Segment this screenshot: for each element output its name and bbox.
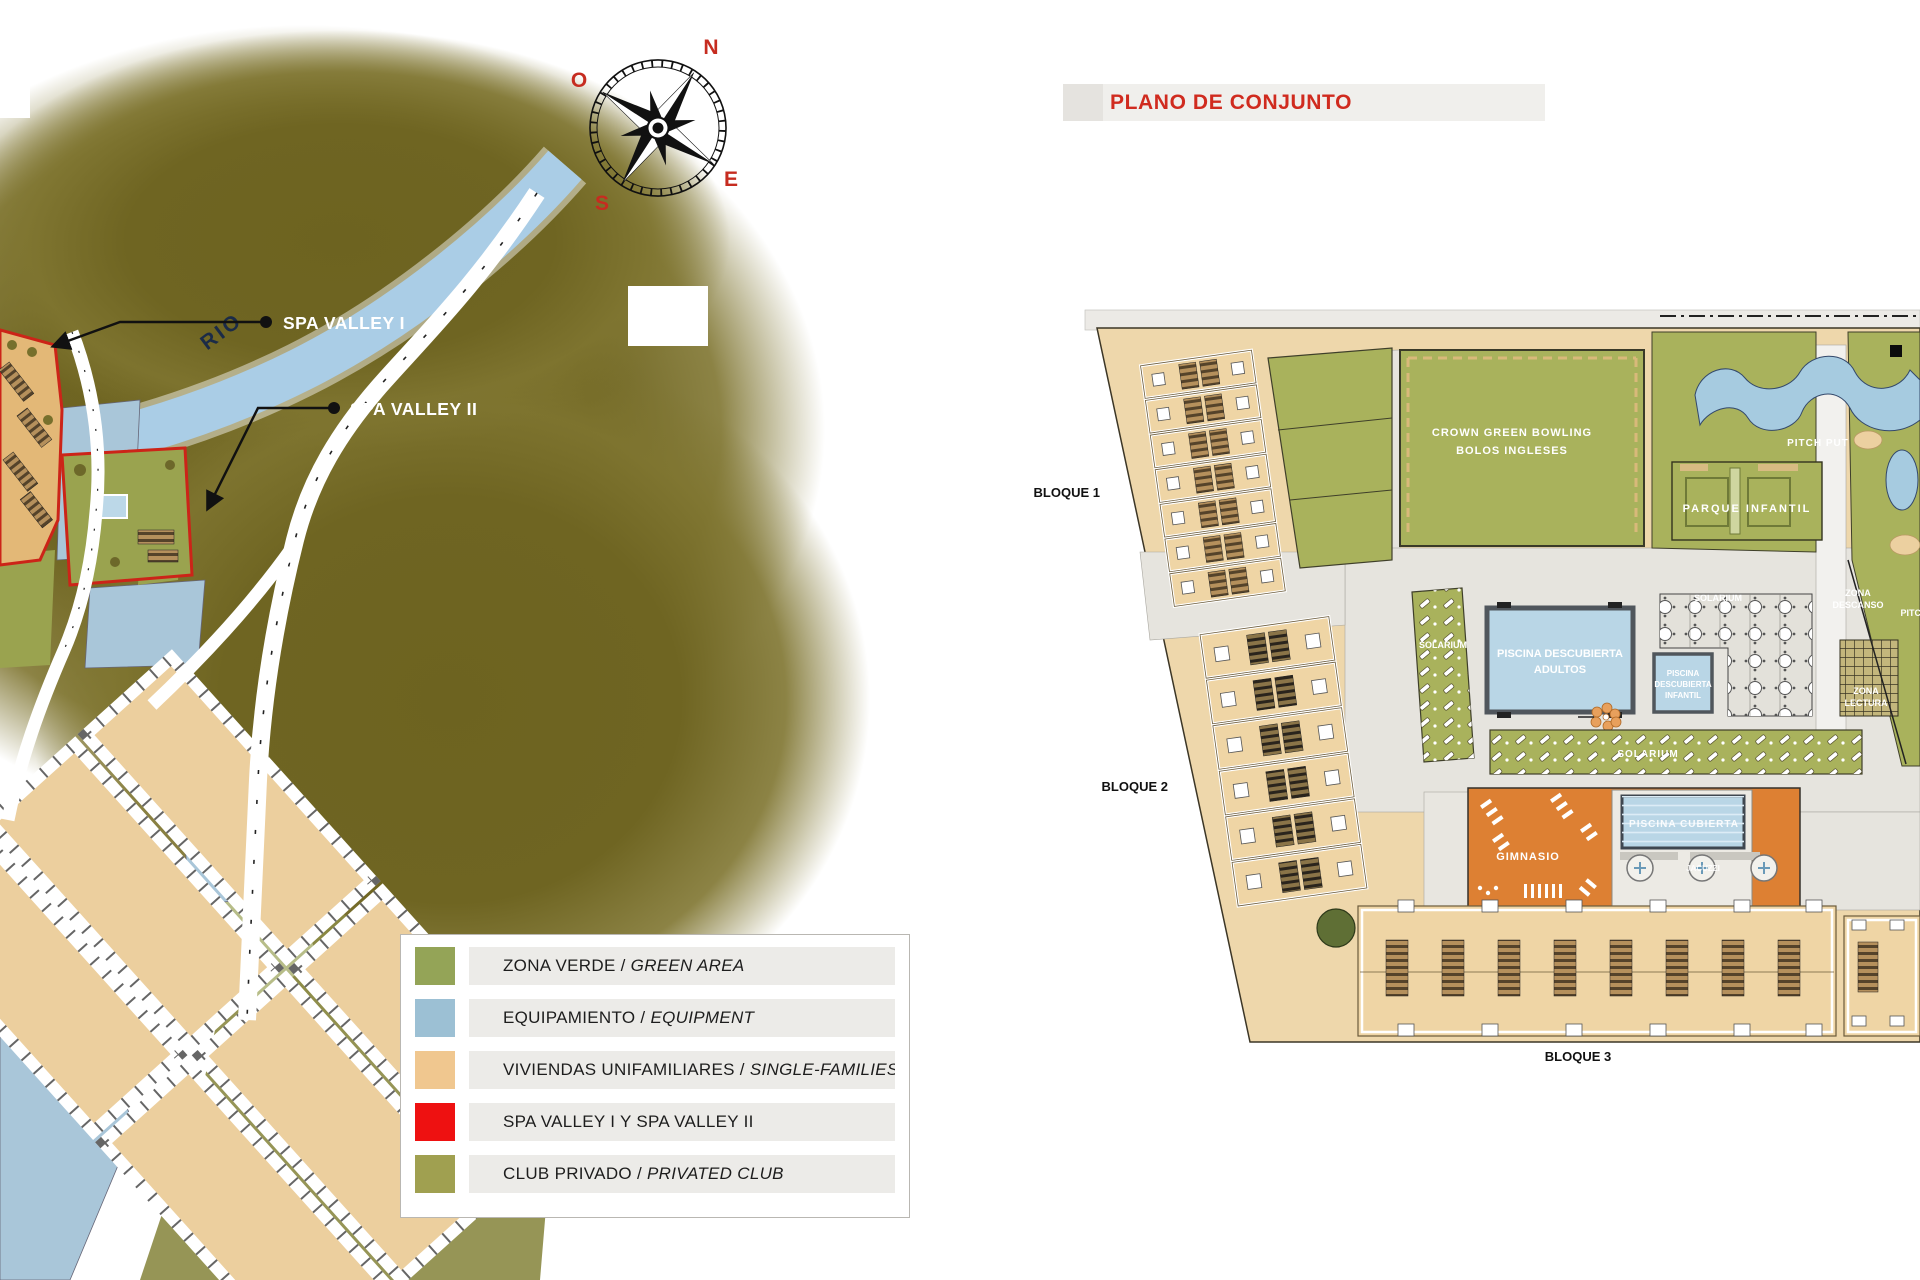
plan-title-bar: PLANO DE CONJUNTO — [1063, 84, 1545, 121]
kids-pool-label-1: PISCINA — [1667, 669, 1700, 678]
bowling-green: CROWN GREEN BOWLING BOLOS INGLESES — [1400, 350, 1644, 546]
bloque-2-label: BLOQUE 2 — [1102, 779, 1168, 794]
legend-swatch-blue — [415, 999, 455, 1037]
bloque-1-label: BLOQUE 1 — [1034, 485, 1100, 500]
spa-valley-2-label: SPA VALLEY II — [350, 399, 477, 419]
brochure-page: RIO — [0, 0, 1920, 1280]
bowling-label-1: CROWN GREEN BOWLING — [1432, 427, 1592, 439]
legend-item-houses: VIVIENDAS UNIFAMILIARES / SINGLE-FAMILIE… — [415, 1051, 895, 1089]
legend-item-private-club: CLUB PRIVADO / PRIVATED CLUB — [415, 1155, 895, 1193]
pond — [1886, 450, 1918, 510]
site-plan-artwork: RIO — [0, 0, 1920, 1280]
zona-descanso-1: ZONA — [1845, 588, 1871, 598]
legend-swatch-tan — [415, 1051, 455, 1089]
legend-item-equipment: EQUIPAMIENTO / EQUIPMENT — [415, 999, 895, 1037]
kids-pool-label-3: INFANTIL — [1665, 691, 1701, 700]
spa-valley-2-parcel — [62, 448, 192, 585]
bloque-3-label: BLOQUE 3 — [1545, 1049, 1611, 1064]
legend-swatch-red — [415, 1103, 455, 1141]
gym-label: GIMNASIO — [1496, 851, 1560, 863]
spa-valley-1-parcel — [0, 330, 62, 565]
tree-bush — [1317, 909, 1355, 947]
bunker — [1854, 431, 1882, 449]
legend-label-private-club: CLUB PRIVADO / PRIVATED CLUB — [469, 1155, 895, 1193]
spa-valley-1-label: SPA VALLEY I — [283, 313, 405, 333]
adult-pool: PISCINA DESCUBIERTA ADULTOS — [1487, 602, 1633, 718]
bowling-label-2: BOLOS INGLESES — [1456, 445, 1568, 457]
legend-label-spa-valley: SPA VALLEY I Y SPA VALLEY II — [469, 1103, 895, 1141]
solarium-label-band: SOLARIUM — [1617, 749, 1678, 760]
zona-lectura-1: ZONA — [1853, 686, 1879, 696]
pitch-partial-label: PITCH — [1901, 608, 1920, 618]
legend-swatch-olive — [415, 1155, 455, 1193]
adult-pool-label-2: ADULTOS — [1534, 664, 1586, 676]
compass-e: E — [724, 168, 738, 191]
compass-s: S — [595, 192, 609, 215]
callout-dot — [328, 402, 340, 414]
adult-pool-label-1: PISCINA DESCUBIERTA — [1497, 648, 1623, 660]
title-bar-tab — [1063, 84, 1103, 121]
legend-label-houses: VIVIENDAS UNIFAMILIARES / SINGLE-FAMILIE… — [469, 1051, 895, 1089]
right-site-plan: CROWN GREEN BOWLING BOLOS INGLESES PITCH… — [1034, 310, 1920, 1064]
legend-item-spa-valley: SPA VALLEY I Y SPA VALLEY II — [415, 1103, 895, 1141]
legend-item-green-area: ZONA VERDE / GREEN AREA — [415, 947, 895, 985]
blank-box-artifact — [628, 286, 708, 346]
indoor-pool-label: PISCINA CUBIERTA — [1629, 819, 1739, 830]
pitch-put-label: PITCH PUT — [1787, 438, 1849, 449]
legend-label-green: ZONA VERDE / GREEN AREA — [469, 947, 895, 985]
callout-dot — [260, 316, 272, 328]
zona-lectura-2: LECTURA — [1845, 698, 1888, 708]
blank-label-artifact — [0, 72, 30, 118]
solarium-label-top: SOLARIUM — [1694, 593, 1742, 603]
page-title: PLANO DE CONJUNTO — [1110, 84, 1352, 121]
kids-pool-label-2: DESCUBIERTA — [1654, 680, 1711, 689]
green-parcel — [0, 550, 55, 668]
compass-n: N — [703, 36, 718, 59]
flag-marker — [1890, 345, 1902, 357]
kids-pool: PISCINA DESCUBIERTA INFANTIL — [1654, 654, 1712, 712]
compass-o: O — [571, 69, 587, 92]
equipment-parcel — [85, 580, 205, 668]
solarium-band: SOLARIUM — [1490, 730, 1862, 774]
bunker — [1890, 535, 1920, 555]
playground-label: PARQUE INFANTIL — [1683, 503, 1812, 515]
bloque-3-buildings — [1358, 900, 1920, 1036]
sports-building: GIMNASIO PISCINA CUBIERTA JACUZZI — [1468, 788, 1800, 908]
playground: PARQUE INFANTIL — [1672, 462, 1822, 540]
solarium-label-left: SOLARIUM — [1419, 640, 1467, 650]
zona-descanso-2: DESCANSO — [1832, 600, 1883, 610]
jacuzzi-label: JACUZZI — [1686, 864, 1720, 873]
legend-label-equipment: EQUIPAMIENTO / EQUIPMENT — [469, 999, 895, 1037]
legend-swatch-green — [415, 947, 455, 985]
map-legend: ZONA VERDE / GREEN AREA EQUIPAMIENTO / E… — [400, 934, 910, 1218]
